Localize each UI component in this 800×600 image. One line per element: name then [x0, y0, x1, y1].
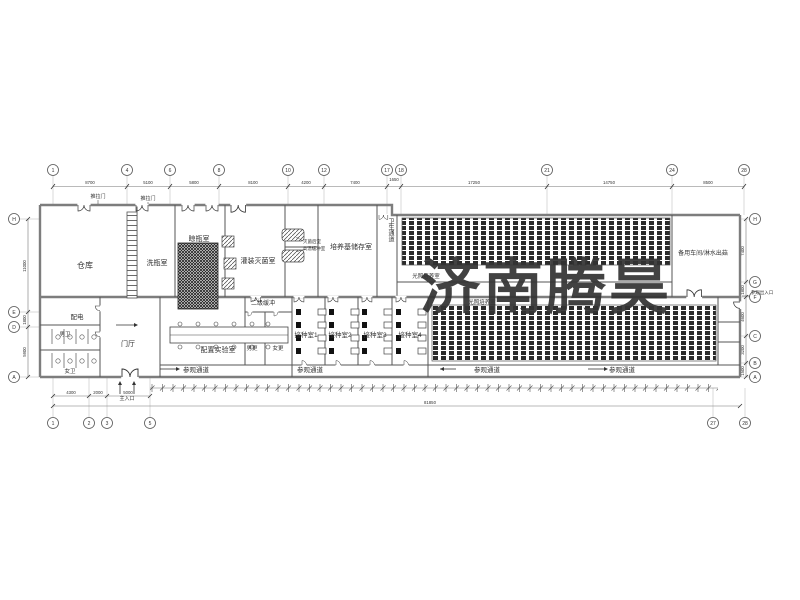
- room-label-toilet-f: 女卫: [64, 367, 76, 375]
- dim-text: 5900: [22, 347, 27, 357]
- bay-dimension-ticks: [150, 384, 718, 392]
- room-label-prep-lab: 配置实验室: [201, 345, 236, 354]
- axis-label: 4: [126, 168, 129, 174]
- room-label-change-f: 女更: [272, 344, 284, 352]
- room-label-spare-workshop: 备用车间/淋水出菇: [678, 249, 728, 257]
- room-label-change-m: 男更: [246, 345, 258, 352]
- dim-text: 4200: [301, 180, 311, 185]
- interior-equipment: [52, 212, 426, 368]
- room-label-medium-storage: 培养基储存室: [330, 242, 372, 251]
- axis-label: 10: [285, 168, 291, 174]
- autoclave: [282, 229, 304, 241]
- axis-label: 1: [52, 168, 55, 174]
- room-label-inoculation-2: 接种室2: [328, 330, 352, 339]
- axis-label: H: [12, 217, 16, 223]
- axis-label: 1: [52, 421, 55, 427]
- floor-plan-sheet: 1 4 6 8 10 12 17 18 21 24 28 1 2 3 5 27 …: [0, 0, 800, 600]
- room-label-toilet-m: 男卫: [59, 331, 71, 338]
- room-label-bottle-dry: 晾瓶室: [189, 234, 210, 243]
- machine: [222, 278, 234, 289]
- autoclave: [282, 250, 304, 262]
- corridor-label-visitor: 参观通道: [474, 365, 501, 374]
- annotation-sliding-door: 推拉门: [140, 195, 155, 202]
- dim-text: 8500: [703, 180, 713, 185]
- dim-text: 2000: [93, 390, 103, 395]
- machine: [222, 236, 234, 247]
- dim-text: 8100: [248, 180, 258, 185]
- dim-text: 1650: [389, 177, 399, 182]
- annotation-sliding-door: 推拉门: [90, 193, 105, 200]
- axis-label: 6: [169, 168, 172, 174]
- dim-text: 1800: [22, 315, 27, 325]
- axis-label: H: [753, 217, 757, 223]
- annotation-high-temp-buffer: 高温缓冲室: [303, 245, 326, 252]
- room-label-filling-sterilize: 灌装灭菌室: [241, 256, 276, 265]
- dim-text: 11000: [22, 260, 27, 272]
- room-label-warehouse: 仓库: [77, 260, 93, 270]
- axis-label: 24: [669, 168, 675, 174]
- axis-label: G: [753, 280, 757, 286]
- room-label-bottle-wash: 洗瓶室: [147, 258, 168, 267]
- axis-label: 28: [741, 168, 747, 174]
- room-label-hygiene-corridor: 卫生通道: [387, 218, 394, 243]
- corridor-label-visitor: 参观通道: [183, 365, 210, 374]
- bottle-conveyor: [127, 212, 137, 298]
- dim-text: 5800: [189, 180, 199, 185]
- watermark-text: 济南腾昊: [420, 254, 672, 321]
- dim-text: 14750: [603, 180, 616, 185]
- axis-label: C: [753, 334, 757, 340]
- axis-label: D: [12, 325, 16, 331]
- axis-label: 5: [149, 421, 152, 427]
- room-label-inoculation-4: 接种室4: [398, 330, 422, 339]
- dim-text: 5100: [143, 180, 153, 185]
- axis-label: 21: [544, 168, 550, 174]
- drying-equipment-block: [178, 243, 218, 309]
- floor-plan-drawing: 1 4 6 8 10 12 17 18 21 24 28 1 2 3 5 27 …: [0, 0, 800, 600]
- room-label-inoculation-3: 接种室3: [363, 330, 387, 339]
- axis-label: 3: [106, 421, 109, 427]
- room-label-entrance-hall: 门厅: [121, 339, 135, 348]
- dim-text: 4300: [66, 390, 76, 395]
- corridor-label-visitor: 参观通道: [297, 365, 324, 374]
- room-label-buffer-2: 二级缓冲: [251, 299, 275, 307]
- dim-text: 17250: [468, 180, 481, 185]
- axis-label: 27: [710, 421, 716, 427]
- annotation-sterilize-after: 灭菌后室: [303, 238, 321, 245]
- annotation-visitor-entrance: 参观出入口: [751, 289, 774, 296]
- axis-label: 12: [321, 168, 327, 174]
- corridor-label-visitor: 参观通道: [609, 365, 636, 374]
- room-label-inoculation-1: 接种室1: [294, 330, 318, 339]
- axis-label: 17: [384, 168, 390, 174]
- dim-text: 8700: [85, 180, 95, 185]
- axis-label: 2: [88, 421, 91, 427]
- dim-text: 7400: [350, 180, 360, 185]
- dim-text-overall: 81850: [424, 400, 437, 405]
- axis-label: 18: [398, 168, 404, 174]
- dim-text: 5000: [123, 390, 133, 395]
- axis-label: 28: [742, 421, 748, 427]
- axis-label: 8: [218, 168, 221, 174]
- axis-label: F: [753, 295, 756, 301]
- room-label-power: 配电: [71, 312, 85, 321]
- annotation-main-entrance: 主入口: [119, 395, 134, 402]
- machine: [224, 258, 236, 269]
